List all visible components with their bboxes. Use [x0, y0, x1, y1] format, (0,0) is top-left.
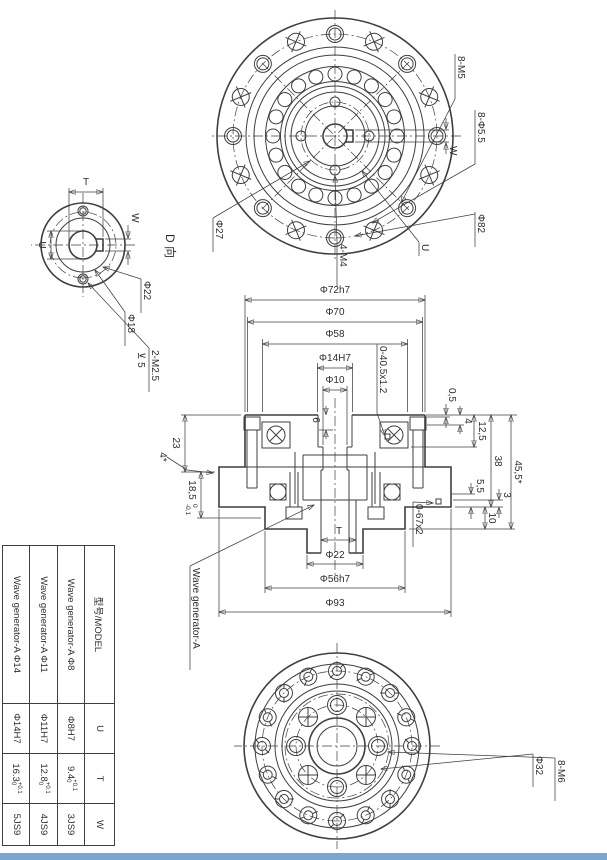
dview-m25-label: 2-M2.5 [149, 350, 160, 382]
table-row: Wave generator-A Φ11 Φ11H7 12.8+0.10 4JS… [30, 546, 57, 846]
cell-w: 4JS9 [30, 804, 57, 846]
cell-w: 3JS9 [57, 804, 84, 846]
header-w: W [84, 804, 114, 846]
dview-u-label: U [36, 241, 47, 248]
cell-u: Φ8H7 [57, 704, 84, 754]
dim-d70: Φ70 [325, 307, 345, 318]
cell-model: Wave generator-A Φ8 [57, 546, 84, 704]
dview-title: D 向 [163, 234, 178, 258]
dview-t-label: T [83, 177, 89, 188]
front-m5-label: 8-M5 [455, 56, 466, 79]
front-view: W 8-M5 8-Φ5.5 Φ82 U 4-M4 Φ27 [209, 10, 486, 287]
dim-d22: Φ22 [325, 550, 345, 561]
dim-18-5-tol-up: 0 [191, 504, 198, 508]
front-d27-label: Φ27 [213, 220, 224, 240]
front-u-label: U [419, 244, 430, 251]
cell-u: Φ11H7 [30, 704, 57, 754]
cell-u: Φ14H7 [3, 704, 30, 754]
front-m4-label: 4-M4 [337, 244, 348, 267]
header-model: 型号/MODEL [84, 546, 114, 704]
cell-model: Wave generator-A Φ14 [3, 546, 30, 704]
dim-d56h7: Φ56h7 [320, 574, 351, 585]
dim-d58: Φ58 [325, 329, 345, 340]
oring-67-label: 0-67x2 [413, 504, 424, 535]
dview-depth-label: ⊻ 5 [135, 352, 146, 368]
dim-d10: Φ10 [325, 375, 345, 386]
header-u: U [84, 704, 114, 754]
drawing-sheet: W 8-M5 8-Φ5.5 Φ82 U 4-M4 Φ27 W T U Φ22 Φ… [0, 0, 607, 860]
dim-38: 38 [492, 455, 503, 467]
dview-w-label: W [129, 213, 140, 223]
dim-6: 6 [310, 417, 321, 423]
section-view: Φ72h7 Φ70 Φ58 Φ14H7 Φ10 T Φ22 Φ56h7 Φ93 … [157, 285, 523, 670]
dim-18-5-tol-dn: -0,1 [184, 504, 191, 516]
dim-12-5: 12,5 [476, 421, 487, 441]
cell-w: 5JS9 [3, 804, 30, 846]
model-table: 型号/MODEL U T W Wave generator-A Φ8 Φ8H7 … [2, 545, 115, 845]
dim-chamfer-4: 4* [157, 452, 168, 462]
dim-23: 23 [170, 437, 181, 449]
cell-model: Wave generator-A Φ11 [30, 546, 57, 704]
dim-0-5: 0,5 [446, 388, 457, 402]
table-row: Wave generator-A Φ14 Φ14H7 16.3+0.10 5JS… [3, 546, 30, 846]
dim-d93: Φ93 [325, 598, 345, 609]
table-row: Wave generator-A Φ8 Φ8H7 9.4+0.10 3JS9 [57, 546, 84, 846]
front-d82-label: Φ82 [475, 214, 486, 234]
dim-10: 10 [486, 512, 497, 524]
front-d55-label: 8-Φ5.5 [475, 112, 486, 143]
dim-t: T [336, 526, 342, 537]
back-d32-label: Φ32 [533, 756, 544, 776]
dim-d72h7: Φ72h7 [320, 285, 351, 296]
cell-t: 16.3+0.10 [3, 754, 30, 804]
dim-18-5: 18,5 [186, 480, 197, 500]
oring-40-label: 0-40.5x1.2 [377, 346, 388, 394]
header-t: T [84, 754, 114, 804]
d-view: W T U Φ22 Φ18 2-M2.5 ⊻ 5 D 向 [31, 177, 178, 392]
back-view: 8-M6 Φ32 [234, 643, 566, 849]
landscape-canvas: W 8-M5 8-Φ5.5 Φ82 U 4-M4 Φ27 W T U Φ22 Φ… [0, 0, 607, 860]
dview-d22-label: Φ22 [141, 281, 152, 301]
dim-4: 4 [462, 418, 473, 424]
cell-t: 12.8+0.10 [30, 754, 57, 804]
table-header-row: 型号/MODEL U T W [84, 546, 114, 846]
back-m6-label: 8-M6 [555, 760, 566, 783]
wave-generator-label: Wave generator-A [190, 568, 201, 649]
front-keyway-width-label: W [447, 146, 458, 156]
dim-5-5: 5,5 [474, 479, 485, 493]
bottom-accent-bar [0, 853, 607, 860]
dim-45-5: 45,5* [512, 460, 523, 483]
cell-t: 9.4+0.10 [57, 754, 84, 804]
dim-d14h7: Φ14H7 [319, 353, 351, 364]
dim-3: 3 [501, 492, 512, 498]
